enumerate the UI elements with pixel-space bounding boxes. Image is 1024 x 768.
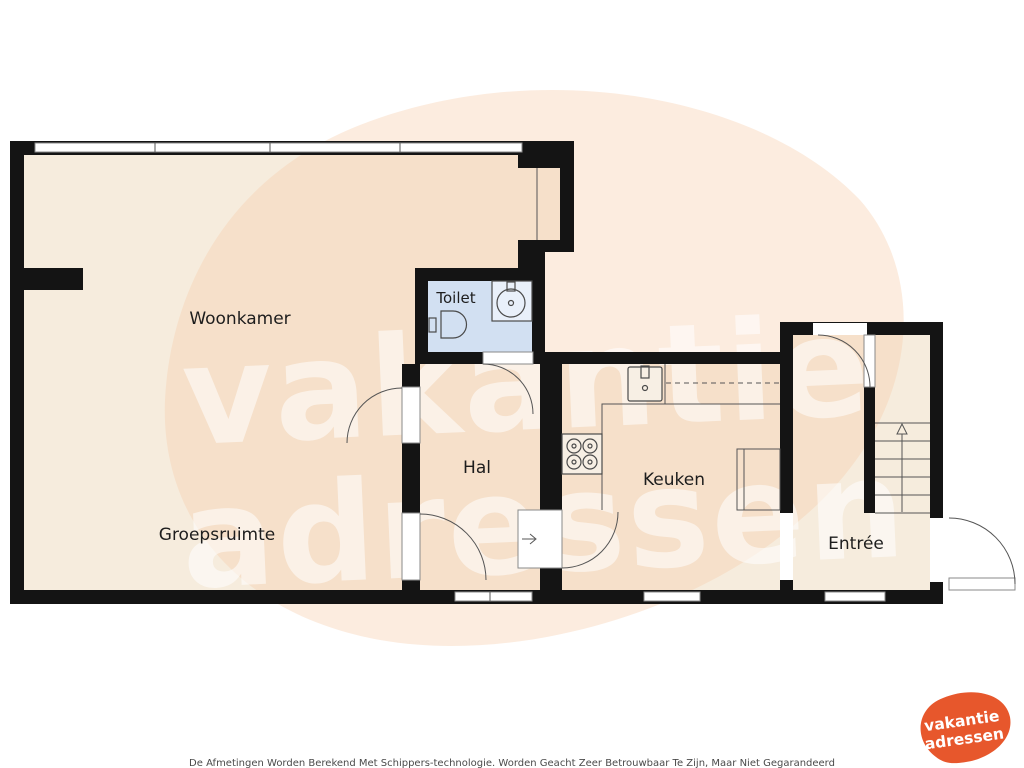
window-top [35, 143, 522, 152]
window-entree-bottom [825, 592, 885, 601]
window-keuken-bottom [644, 592, 700, 601]
vakantie-adressen-logo: vakantie adressen [921, 692, 1011, 763]
wall-toilet-left [415, 268, 428, 363]
window-hal-bottom [455, 592, 532, 601]
disclaimer-text: De Afmetingen Worden Berekend Met Schipp… [189, 758, 835, 768]
wall-left-stub [10, 268, 83, 290]
wall-bay-right [560, 160, 574, 252]
kitchen-sink-unit [628, 367, 662, 401]
door-front-arc [949, 518, 1015, 584]
door-front-opening [930, 518, 943, 582]
opening-keuken-entree [780, 513, 793, 580]
stove-icon [562, 434, 602, 474]
wall-toilet-right [532, 281, 545, 364]
label-groepsruimte: Groepsruimte [159, 525, 275, 545]
label-hal: Hal [463, 458, 491, 478]
label-woonkamer: Woonkamer [189, 309, 290, 329]
door-groepsruimte-hal-leaf [402, 513, 420, 580]
label-keuken: Keuken [643, 470, 705, 490]
wall-left [10, 141, 24, 604]
door-front-leaf [949, 578, 1015, 590]
wall-toilet-top [415, 268, 545, 281]
door-toilet-leaf [483, 352, 533, 364]
label-toilet: Toilet [435, 289, 475, 307]
door-entree-top-opening [813, 323, 867, 335]
wall-bay-bottom [518, 240, 574, 252]
floorplan-canvas: vakantie adressen [0, 0, 1024, 768]
wall-stairs-divider [864, 387, 875, 513]
wall-keuken-top [415, 352, 793, 364]
door-woonkamer-hal-leaf [402, 387, 420, 443]
label-entree: Entrée [828, 534, 884, 554]
